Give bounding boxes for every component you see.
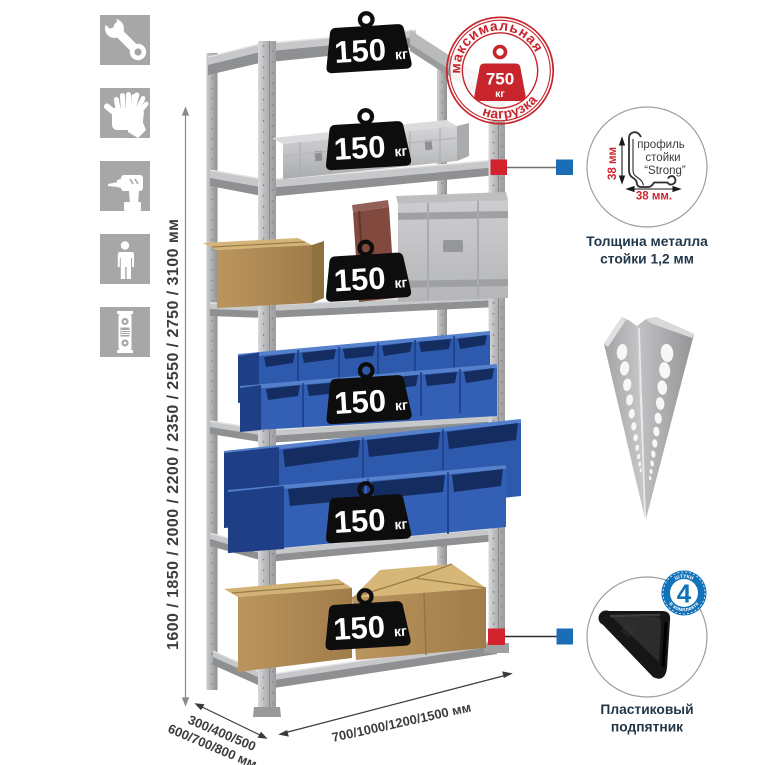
svg-text:подпятник: подпятник <box>611 720 683 735</box>
svg-text:кг: кг <box>393 623 407 640</box>
svg-text:150: 150 <box>333 383 387 421</box>
svg-text:кг: кг <box>394 397 408 414</box>
svg-text:кг: кг <box>394 46 408 63</box>
svg-text:150: 150 <box>333 260 387 298</box>
svg-text:150: 150 <box>333 129 387 167</box>
svg-text:кг: кг <box>394 516 408 533</box>
svg-text:кг: кг <box>495 88 505 100</box>
svg-text:150: 150 <box>333 32 387 70</box>
svg-text:4: 4 <box>677 579 692 609</box>
svg-text:750: 750 <box>486 70 514 89</box>
svg-text:1600 / 1850 / 2000 / 2200 / 23: 1600 / 1850 / 2000 / 2200 / 2350 / 2550 … <box>165 219 182 650</box>
svg-text:профиль: профиль <box>637 139 685 151</box>
svg-text:150: 150 <box>332 609 386 647</box>
svg-text:38 мм.: 38 мм. <box>636 191 672 203</box>
svg-text:Пластиковый: Пластиковый <box>600 702 693 717</box>
svg-text:“Strong”: “Strong” <box>644 165 686 177</box>
svg-text:Толщина металла: Толщина металла <box>586 234 708 249</box>
svg-text:38 мм: 38 мм <box>607 147 619 180</box>
svg-text:стойки: стойки <box>645 152 680 164</box>
svg-text:кг: кг <box>394 143 408 160</box>
svg-text:стойки 1,2 мм: стойки 1,2 мм <box>600 252 694 267</box>
svg-text:кг: кг <box>394 274 408 291</box>
svg-text:150: 150 <box>333 502 387 540</box>
